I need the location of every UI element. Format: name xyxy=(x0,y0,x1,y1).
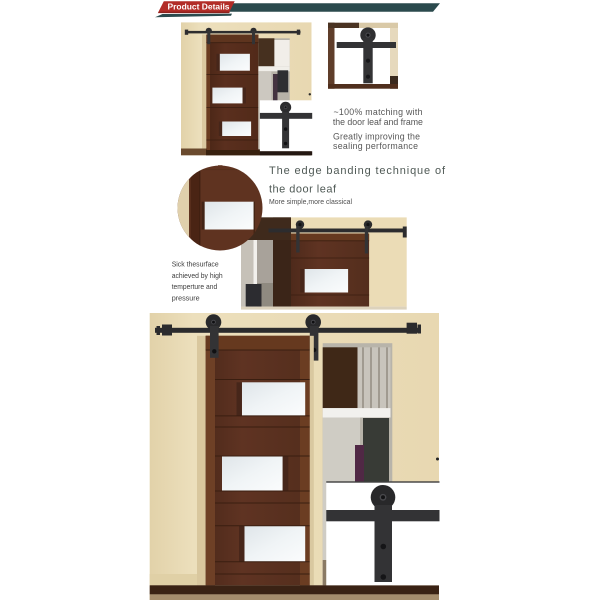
svg-text:Sick thesurface: Sick thesurface xyxy=(172,260,219,269)
svg-text:~100% matching with: ~100% matching with xyxy=(334,107,423,117)
svg-text:achieved by high: achieved by high xyxy=(172,271,223,280)
svg-text:pressure: pressure xyxy=(172,294,200,303)
svg-text:Greatly improving the: Greatly improving the xyxy=(333,132,420,142)
svg-text:sealing performance: sealing performance xyxy=(333,141,418,151)
svg-text:The edge banding technique of: The edge banding technique of xyxy=(269,165,446,177)
svg-text:the door leaf and frame: the door leaf and frame xyxy=(333,117,423,127)
svg-text:the door leaf: the door leaf xyxy=(269,183,337,195)
svg-text:temperture and: temperture and xyxy=(172,282,218,291)
svg-text:Product Details: Product Details xyxy=(168,2,231,11)
svg-text:More simple,more classical: More simple,more classical xyxy=(269,197,352,206)
